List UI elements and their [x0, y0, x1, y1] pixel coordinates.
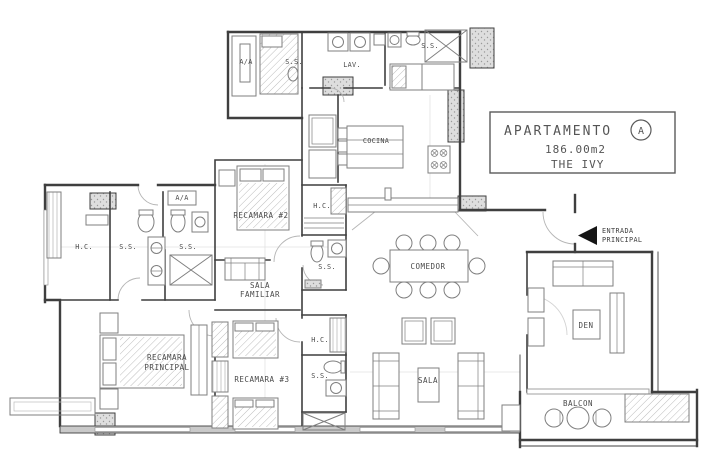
label-aa-hall: A/A [175, 194, 188, 202]
room-label-recamara2: RECAMARA #2 [233, 211, 288, 220]
room-label-balcon: BALCON [563, 399, 593, 408]
room-label-recamara-principal-1: RECAMARA [147, 353, 187, 362]
unit-badge-letter: A [638, 126, 644, 137]
label-ss-master-2: S.S. [179, 243, 197, 251]
title-area-label: 186.00m2 [545, 143, 606, 156]
label-ss-maid: S.S. [421, 42, 439, 50]
floor-plan-page: ENTRADA PRINCIPAL APARTAMENTO A 186.00m2… [0, 0, 710, 473]
entrance-label-line1: ENTRADA [602, 227, 633, 235]
label-aa-service: A/A [239, 58, 252, 66]
room-label-recamara-principal-2: PRINCIPAL [144, 363, 189, 372]
label-hc-recamara2: H.C. [313, 202, 331, 210]
room-label-cocina: COCINA [363, 137, 389, 145]
room-label-sala-familiar-1: SALA [250, 281, 270, 290]
entrance-arrow-icon [578, 226, 597, 245]
living-room-furniture [373, 353, 520, 431]
master-bath-fixtures [47, 191, 212, 285]
label-hc-recamara3: H.C. [311, 336, 329, 344]
label-ss-recamara3: S.S. [311, 372, 329, 380]
room-label-comedor: COMEDOR [410, 262, 445, 271]
bedroom2-furniture [219, 166, 289, 230]
entrance-marker: ENTRADA PRINCIPAL [578, 226, 642, 245]
room-label-recamara3: RECAMARA #3 [234, 375, 289, 384]
floor-plan-drawing: ENTRADA PRINCIPAL APARTAMENTO A 186.00m2… [0, 0, 710, 473]
room-label-sala: SALA [418, 376, 438, 385]
entrance-label-line2: PRINCIPAL [602, 236, 642, 244]
room-label-sala-familiar-2: FAMILIAR [240, 290, 280, 299]
title-block: APARTAMENTO A 186.00m2 THE IVY [490, 112, 675, 173]
room-label-den: DEN [578, 321, 593, 330]
title-building-label: THE IVY [551, 158, 604, 171]
dining-furniture [373, 235, 485, 344]
title-apartment-label: APARTAMENTO [504, 124, 612, 139]
label-hc-master: H.C. [75, 243, 93, 251]
family-room-furniture [225, 258, 265, 280]
label-ss-master-1: S.S. [119, 243, 137, 251]
label-ss-guest: S.S. [318, 263, 336, 271]
room-label-lavanderia: LAV. [343, 61, 361, 69]
label-ss-service: S.S. [285, 58, 303, 66]
den-furniture [528, 261, 624, 353]
